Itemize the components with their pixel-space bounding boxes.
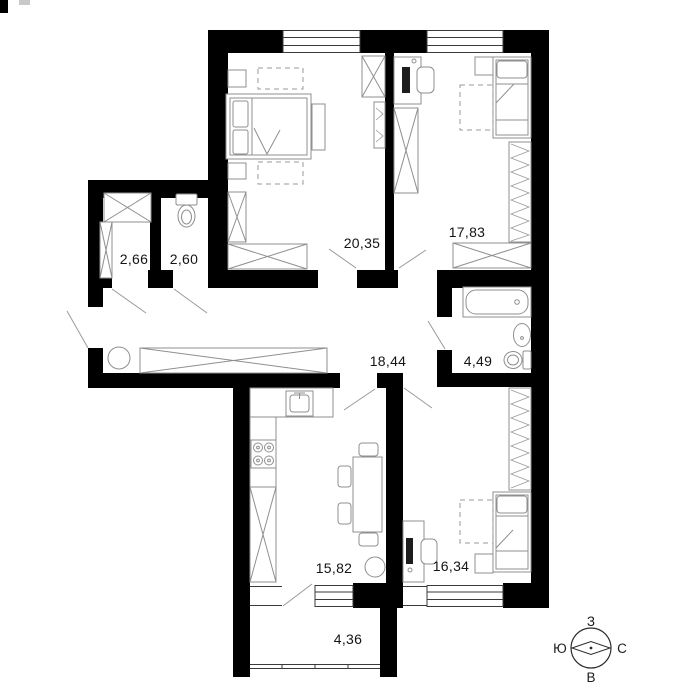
wall: [380, 608, 397, 677]
wall: [357, 270, 398, 288]
wall: [503, 583, 549, 608]
wardrobe-icon: [228, 192, 246, 242]
bench-icon: [312, 104, 325, 150]
monitor-icon: [402, 67, 410, 93]
wall: [208, 270, 318, 288]
compass-east-label: В: [586, 670, 595, 685]
chair-icon: [359, 443, 378, 456]
wardrobe-icon: [100, 222, 112, 278]
wall: [377, 373, 403, 388]
window-top-1: [283, 31, 360, 53]
toilet-icon: [504, 351, 531, 369]
room-hallway: [108, 347, 327, 373]
door-swing-bedroom-1: [329, 249, 356, 268]
window-bedroom-3: [427, 586, 503, 607]
wardrobe-icon: [104, 193, 151, 222]
compass-rose: З Ю С В: [553, 614, 627, 685]
wall: [437, 373, 549, 387]
room-area-label-bathroom: 4,49: [464, 353, 492, 369]
door-swing-wc: [174, 289, 207, 313]
door-swing-bedroom-3: [404, 388, 432, 408]
chair-icon: [338, 503, 351, 524]
plant-icon: [365, 557, 385, 577]
room-area-label-balcony: 4,36: [334, 631, 362, 647]
open-wardrobe-icon: [509, 142, 531, 242]
single-bed-icon: [493, 57, 531, 138]
door-swing-bathroom: [428, 321, 445, 349]
wardrobe-icon: [228, 244, 307, 269]
window-top-2: [427, 31, 503, 53]
dashed-zone: [258, 68, 303, 89]
door-swing-balcony: [283, 584, 312, 606]
stool-icon: [108, 347, 130, 369]
monitor-icon: [406, 538, 413, 564]
wall: [148, 270, 173, 288]
compass-south-label: Ю: [553, 641, 567, 656]
door-swing-kitchen: [344, 389, 375, 410]
floor-plan: 2,66 2,60 20,35 17,83 18,44 4,49 15,82 1…: [0, 0, 700, 700]
door-swing-closet: [112, 289, 146, 313]
compass-center-dot: [590, 647, 593, 650]
wall: [437, 270, 549, 288]
nightstand-icon: [475, 57, 493, 75]
balcony-glazing: [250, 665, 380, 669]
door-swing-entrance: [67, 311, 88, 348]
stove-icon: [251, 440, 276, 468]
kitchen-sink-icon: [286, 391, 313, 416]
room-area-label-kitchen: 15,82: [316, 560, 353, 576]
wall: [531, 30, 549, 608]
room-area-label-hallway: 18,44: [370, 353, 407, 369]
room-area-label-bedroom-1: 20,35: [344, 235, 381, 251]
bathtub-icon: [463, 287, 531, 317]
dining-table-icon: [353, 457, 382, 532]
room-area-label-closet: 2,66: [120, 251, 148, 267]
room-wc: [176, 194, 197, 227]
wall: [386, 388, 403, 608]
wall: [150, 198, 161, 273]
wardrobe-icon: [394, 108, 418, 193]
room-area-label-wc: 2,60: [170, 251, 198, 267]
nightstand-icon: [228, 70, 246, 87]
toilet-icon: [176, 194, 197, 227]
nightstand-icon: [475, 554, 493, 573]
bedroom-3-door-sill: [403, 587, 427, 606]
wall: [437, 288, 452, 317]
wall: [353, 583, 403, 608]
dashed-zone: [460, 500, 493, 543]
room-kitchen: [250, 388, 385, 582]
balcony-door-panel: [250, 587, 282, 606]
chair-icon: [359, 533, 378, 546]
wall: [233, 388, 250, 677]
wall: [360, 30, 427, 53]
corner-artifact: [0, 0, 8, 13]
tv-unit-icon: [374, 102, 385, 148]
open-wardrobe-icon: [509, 388, 531, 490]
compass-west-label: З: [587, 614, 595, 629]
wardrobe-icon: [453, 243, 531, 268]
dashed-zone: [258, 162, 303, 184]
wall: [385, 53, 394, 270]
chair-icon: [417, 67, 434, 93]
room-area-label-bedroom-2: 17,83: [449, 224, 486, 240]
door-swing-bedroom-2: [399, 250, 426, 268]
hall-wardrobe-icon: [140, 348, 327, 373]
wardrobe-icon: [362, 56, 385, 97]
fridge-column-icon: [250, 487, 276, 582]
sink-icon: [514, 324, 531, 347]
single-bed-icon: [493, 492, 531, 572]
window-kitchen: [315, 586, 353, 607]
room-bedroom-3: [403, 388, 531, 582]
wall: [208, 30, 228, 288]
dashed-zone: [460, 85, 493, 130]
chair-icon: [338, 466, 351, 487]
compass-north-label: С: [617, 641, 627, 656]
corner-artifact-2: [19, 0, 30, 5]
wall: [88, 373, 340, 388]
nightstand-icon: [228, 163, 246, 179]
room-area-label-bedroom-3: 16,34: [433, 558, 470, 574]
